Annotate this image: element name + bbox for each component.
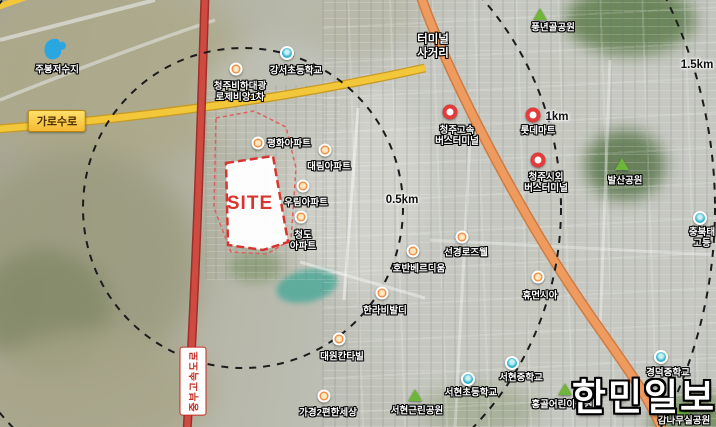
school-label: 강서초등학교 [270,65,322,76]
site-label: SITE [227,193,273,215]
school-icon [693,211,707,225]
apt-icon [407,245,420,258]
park-icon [533,8,547,20]
press-watermark: 한민일보 [572,367,716,421]
apt-label: 평화아파트 [267,138,311,149]
terminal-icon [526,108,541,123]
distance-label: 1.5km [681,59,714,73]
park-label: 풍년골공원 [531,22,575,33]
school-label: 서현중학교 [499,372,543,383]
terminal-icon [531,153,546,168]
apt-icon [230,63,243,76]
park-icon [408,389,422,401]
apt-icon [456,231,469,244]
park-icon [558,383,572,395]
apt-icon [333,333,346,346]
expressway-road-label: 중부고속도로 [180,346,207,415]
apt-label: 호반베르디움 [393,263,445,274]
reservoir-icon [43,37,63,60]
apt-label: 대원칸타빌 [320,351,364,362]
school-icon [280,46,294,60]
apt-label: 선경로즈웰 [444,247,488,258]
markers-layer: 주봉저수지강서초등학교청주비하대광로제비앙1차평화아파트대림아파트우림아파트청도… [0,0,716,427]
apt-label: 대림아파트 [307,161,351,172]
apt-label: 우림아파트 [284,197,328,208]
park-icon [615,158,629,170]
park-label: 서현근린공원 [391,405,443,416]
distance-label: 1km [545,111,568,125]
school-icon [654,350,668,364]
apt-icon [297,180,310,193]
terminal-label: 롯데마트 [521,125,556,136]
apt-label: 휴먼시아 [523,290,558,301]
reservoir-label: 주봉저수지 [35,64,79,75]
apt-label: 한라비발디 [363,305,407,316]
apt-icon [376,287,389,300]
apt-label: 청도아파트 [290,230,316,252]
school-label: 충북태고등 [689,227,715,249]
distance-label: 0.5km [386,194,419,208]
apt-icon [318,390,331,403]
park-label: 발산공원 [608,175,643,186]
school-icon [505,356,519,370]
terminal-icon [443,105,458,120]
school-icon [461,372,475,386]
apt-icon [252,137,265,150]
apt-icon [532,271,545,284]
apt-icon [295,211,308,224]
apt-label: 청주비하대광로제비앙1차 [214,81,266,103]
school-label: 서현초등학교 [445,387,497,398]
apt-icon [319,144,332,157]
junction-label: 터미널사거리 [417,33,449,60]
apt-label: 가경2편한세상 [299,407,357,418]
garosu-road-label: 가로수로 [28,110,86,132]
satellite-site-map: 주봉저수지강서초등학교청주비하대광로제비앙1차평화아파트대림아파트우림아파트청도… [0,0,716,427]
terminal-label: 청주시외버스터미널 [524,172,568,194]
terminal-label: 청주고속버스터미널 [435,125,479,147]
